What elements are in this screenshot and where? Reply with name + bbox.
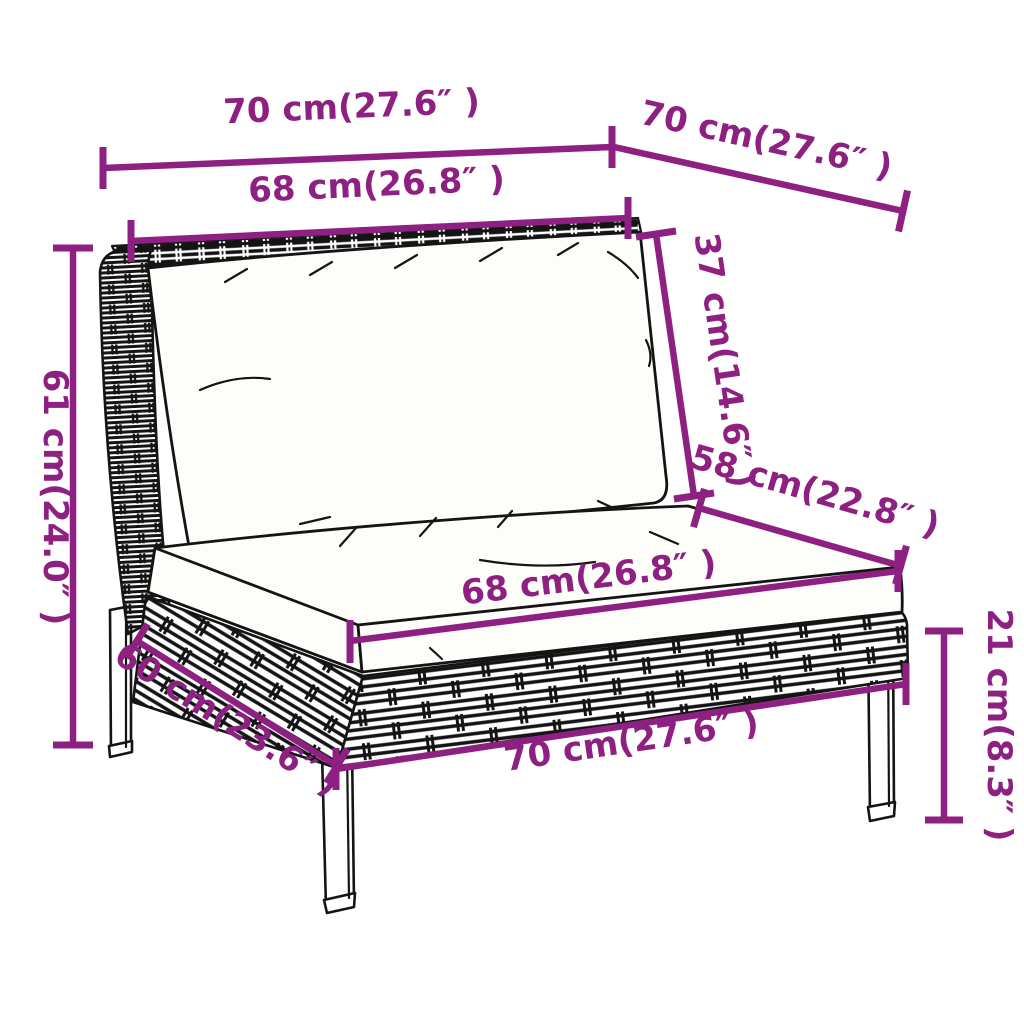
- dim-label-overall-height: 61 cm(24.0″ ): [35, 369, 75, 626]
- dimension-top-depth: 70 cm(27.6″ ): [614, 93, 908, 232]
- dim-label-top-width: 70 cm(27.6″ ): [222, 82, 480, 133]
- dim-label-top-depth: 70 cm(27.6″ ): [637, 93, 896, 188]
- dimension-leg-height: 21 cm(8.3″ ): [925, 608, 1019, 841]
- sofa-illustration: [100, 218, 908, 913]
- sofa-back-cushion: [148, 232, 667, 552]
- dim-label-back-cushion-width: 68 cm(26.8″ ): [247, 159, 505, 211]
- diagram-canvas: 70 cm(27.6″ ) 70 cm(27.6″ ) 68 cm(26.8″ …: [0, 0, 1024, 1024]
- dimension-overall-height: 61 cm(24.0″ ): [35, 248, 93, 745]
- dim-label-leg-height: 21 cm(8.3″ ): [979, 608, 1019, 841]
- dimension-diagram: 70 cm(27.6″ ) 70 cm(27.6″ ) 68 cm(26.8″ …: [0, 0, 1024, 1024]
